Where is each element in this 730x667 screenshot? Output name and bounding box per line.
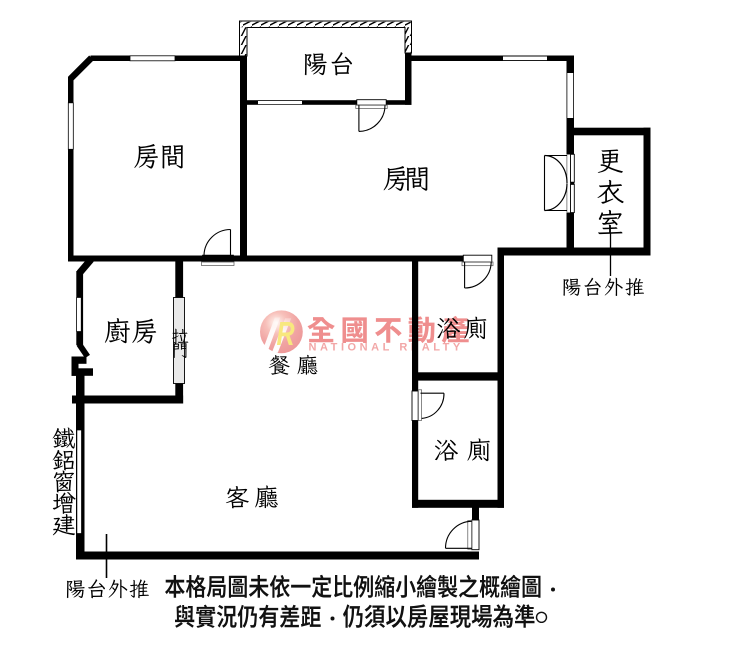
svg-text:R: R	[277, 316, 295, 353]
svg-text:NATIONAL REALTY: NATIONAL REALTY	[309, 342, 464, 354]
